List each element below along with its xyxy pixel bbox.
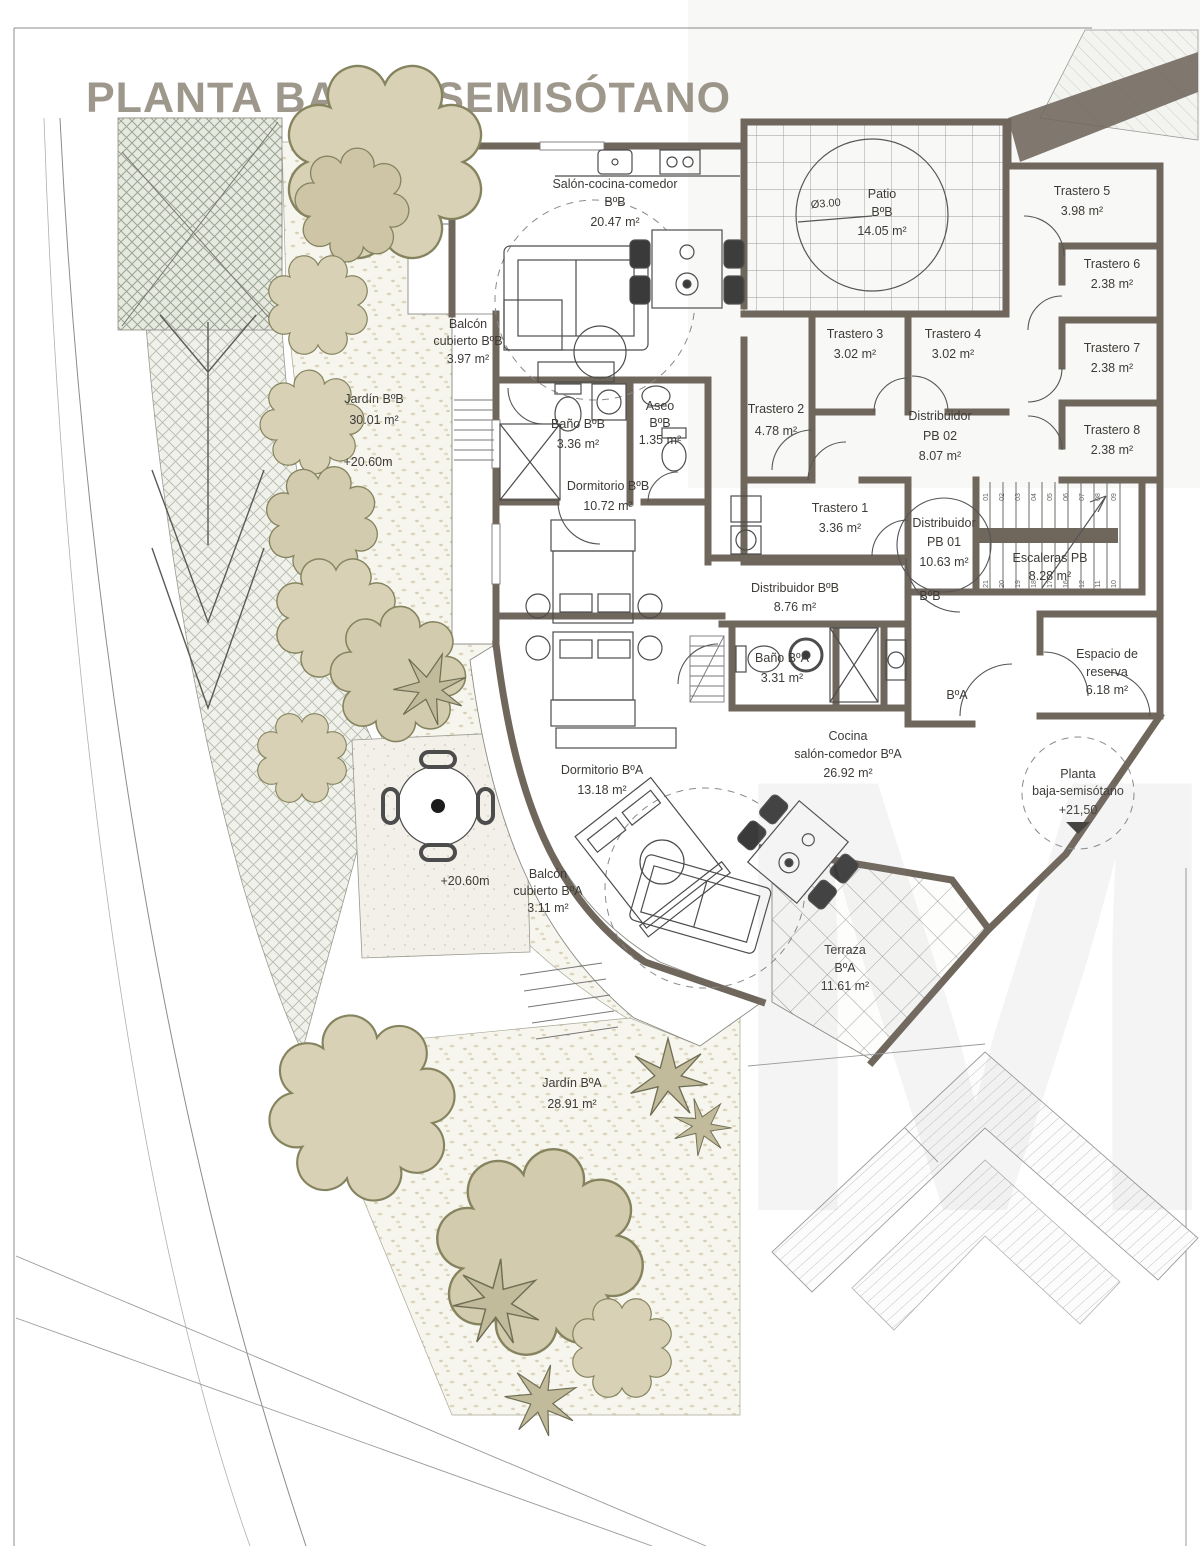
step-number: 05 (1047, 493, 1054, 501)
step-number: 07 (1079, 493, 1086, 501)
floor-plan-page: PLANTA BAJA - SEMISÓTANO (0, 0, 1200, 1546)
level-mark-table: +20.60m (441, 874, 490, 888)
room-area: 28.91 m² (547, 1097, 596, 1111)
step-number: 16 (1063, 580, 1070, 588)
room-area: 4.78 m² (755, 424, 797, 438)
floor-plan-drawing: PLANTA BAJA - SEMISÓTANO (0, 0, 1200, 1546)
room-area: 3.97 m² (447, 352, 489, 366)
room-area: 3.36 m² (557, 437, 599, 451)
room-area: 10.63 m² (919, 555, 968, 569)
room-name: Jardín BºB (344, 392, 403, 406)
room-name-2: cubierto BºA (513, 884, 583, 898)
room-name: Trastero 1 (812, 501, 869, 515)
step-number: 09 (1111, 493, 1118, 501)
room-name: Dormitorio BºB (567, 479, 649, 493)
room-area: 2.38 m² (1091, 277, 1133, 291)
step-number: 04 (1031, 493, 1038, 501)
room-name: Distribuidor (912, 516, 975, 530)
room-name: Balcón (449, 317, 487, 331)
room-name: Distribuidor (908, 409, 971, 423)
room-name: Patio (868, 187, 897, 201)
room-area: 10.72 m² (583, 499, 632, 513)
step-number: 19 (1015, 580, 1022, 588)
step-number: 18 (1031, 580, 1038, 588)
level-mark: +20.60m (344, 455, 393, 469)
room-name: Salón-cocina-comedor (552, 177, 677, 191)
room-area: 3.98 m² (1061, 204, 1103, 218)
room-unit: PB 01 (927, 535, 961, 549)
stair-landing (978, 528, 1118, 543)
room-name: Trastero 3 (827, 327, 884, 341)
room-area: 3.02 m² (932, 347, 974, 361)
room-name: Aseo (646, 399, 675, 413)
step-number: 10 (1111, 580, 1118, 588)
room-name: Distribuidor BºB (751, 581, 839, 595)
room-area: 14.05 m² (857, 224, 906, 238)
room-area: 30.01 m² (349, 413, 398, 427)
room-name: Trastero 7 (1084, 341, 1141, 355)
room-unit: PB 02 (923, 429, 957, 443)
room-name: Trastero 4 (925, 327, 982, 341)
room-unit: BºB (604, 195, 625, 209)
room-name: Trastero 8 (1084, 423, 1141, 437)
step-number: 21 (983, 580, 990, 588)
room-name: Jardín BºA (542, 1076, 602, 1090)
room-area: 8.07 m² (919, 449, 961, 463)
room-name: Dormitorio BºA (561, 763, 644, 777)
room-unit: BºB (871, 205, 892, 219)
step-number: 01 (983, 493, 990, 501)
room-area: 2.38 m² (1091, 443, 1133, 457)
room-name: Baño BºB (551, 417, 605, 431)
room-name: Trastero 2 (748, 402, 805, 416)
step-number: 08 (1095, 493, 1102, 501)
watermark: M (717, 650, 1200, 1342)
step-number: 06 (1063, 493, 1070, 501)
room-area: 13.18 m² (577, 783, 626, 797)
room-area: 3.11 m² (527, 901, 568, 915)
room-area: 3.02 m² (834, 347, 876, 361)
step-number: 20 (999, 580, 1006, 588)
room-area: 3.36 m² (819, 521, 861, 535)
room-unit: BºB (649, 416, 670, 430)
step-number: 02 (999, 493, 1006, 501)
room-area: 2.38 m² (1091, 361, 1133, 375)
room-name: Balcón (529, 867, 567, 881)
step-number: 17 (1047, 580, 1054, 588)
room-name: Trastero 6 (1084, 257, 1141, 271)
room-name: Trastero 5 (1054, 184, 1111, 198)
room-area: 1.35 m² (639, 433, 681, 447)
room-area: 8.76 m² (774, 600, 816, 614)
step-number: 11 (1095, 580, 1102, 587)
room-name-2: cubierto BºB (433, 334, 502, 348)
room-name: Escaleras PB (1012, 551, 1087, 565)
room-area: 20.47 m² (590, 215, 639, 229)
step-number: 12 (1079, 580, 1086, 588)
step-number: 03 (1015, 493, 1022, 501)
unit-tag-bb: BºB (919, 589, 940, 603)
